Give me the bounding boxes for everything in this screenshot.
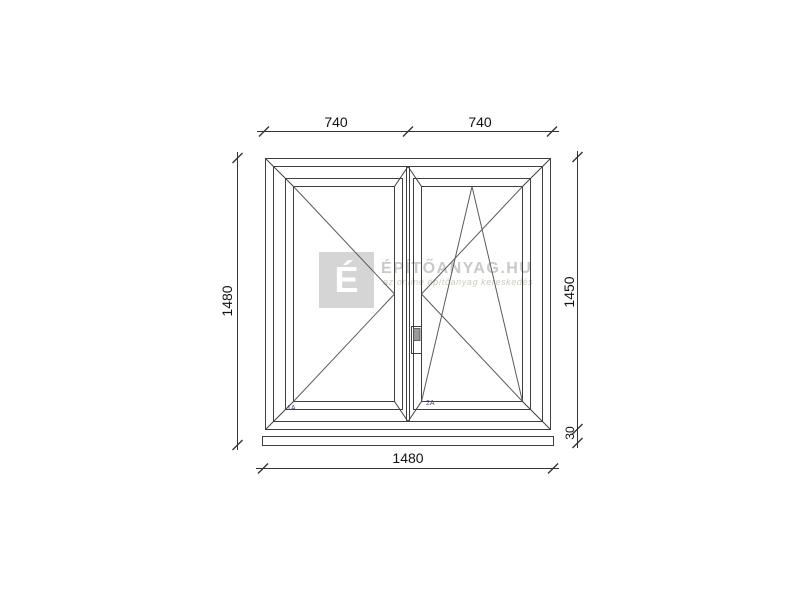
dim-bottom-value: 1480 [392, 450, 423, 466]
left-sash-frame [286, 179, 403, 410]
left-sash-glass [294, 187, 395, 402]
right-sash-turn-symbol [422, 187, 523, 402]
dim-left-value: 1480 [219, 285, 235, 316]
left-sash-opening-symbol [294, 187, 395, 402]
dim-top-left-value: 740 [324, 114, 348, 130]
mullion-miter-lines [395, 167, 422, 422]
right-sash-tilt-symbol [422, 187, 523, 402]
window-drawing-svg: 1A 2A 740 740 1480 1450 30 1480 [0, 0, 800, 600]
window-product-drawing: É ÉPÍTŐANYAG.HU az online építőanyag ker… [0, 0, 800, 600]
right-sash-frame [414, 179, 531, 410]
mullion [407, 167, 410, 422]
right-sash-label: 2A [426, 400, 435, 407]
sill-strip [263, 437, 554, 446]
left-sash-label: 1A [287, 405, 296, 412]
dim-sill-value: 30 [563, 426, 577, 440]
dim-top-right-value: 740 [468, 114, 492, 130]
frame-miter-lines [266, 159, 551, 430]
frame-inner [274, 167, 543, 422]
window-handle-grip [414, 329, 421, 341]
right-sash-glass [422, 187, 523, 402]
dim-right-value: 1450 [561, 276, 577, 307]
frame-outer [266, 159, 551, 430]
